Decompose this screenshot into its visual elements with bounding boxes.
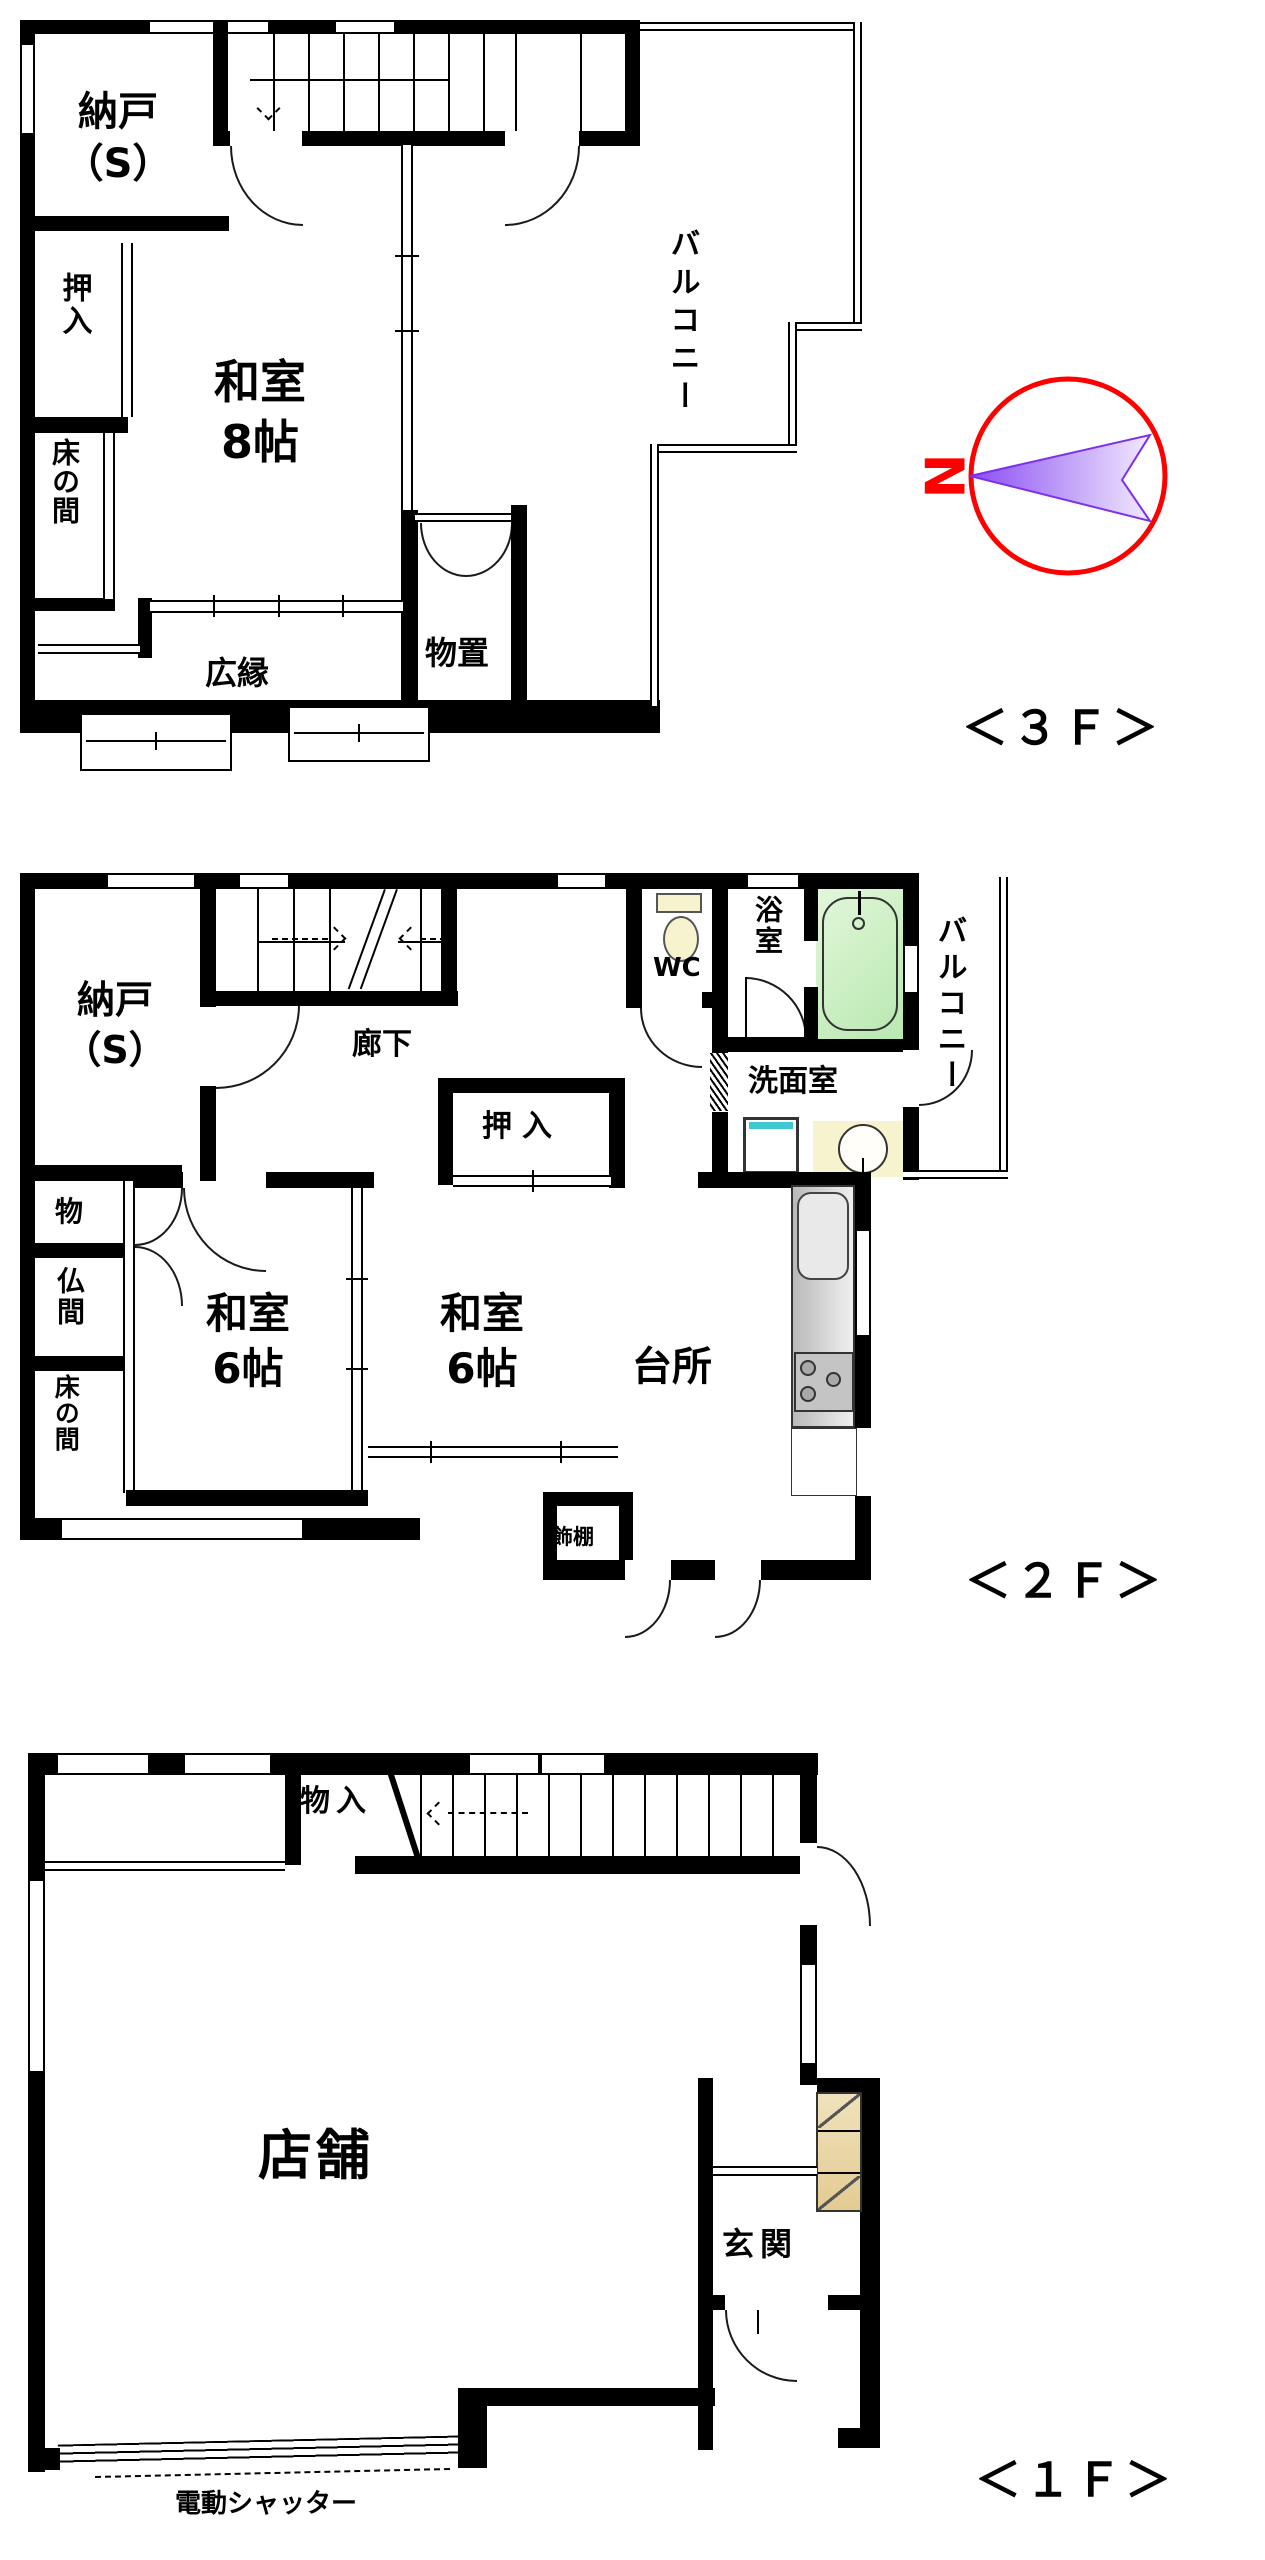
tick [155, 732, 157, 750]
door-opening [800, 1843, 817, 1925]
tick [213, 595, 215, 617]
wall [860, 2078, 880, 2433]
shutter-dashed-line [95, 2468, 450, 2478]
wall [355, 1856, 817, 1874]
compass-north-label: N [920, 453, 978, 498]
stairs-up-line [272, 938, 328, 940]
wall [438, 1078, 453, 1185]
room-label-kazaridana: 飾棚 [552, 1524, 594, 1550]
kitchen-sink-icon [797, 1192, 849, 1280]
balcony-rail [903, 1170, 1008, 1179]
room-label-washitsu6-b: 和室6帖 [392, 1272, 572, 1412]
rear-opening [855, 1428, 871, 1496]
door-opening [505, 131, 579, 146]
wall [712, 889, 728, 1053]
tick [278, 595, 280, 617]
stair-tread [257, 889, 259, 991]
wall [216, 991, 458, 1006]
room-label-butsuma: 仏間 [52, 1266, 87, 1328]
cabinet-diagonal [818, 2094, 860, 2128]
door-arc [817, 1846, 871, 1926]
burner-icon [800, 1360, 816, 1376]
partition [415, 513, 515, 522]
window [58, 1753, 148, 1775]
wall [20, 1356, 125, 1371]
room-label-wc: WC [653, 952, 701, 985]
wall [441, 889, 457, 1006]
stair-landing-line [250, 79, 450, 81]
wall [126, 1490, 368, 1506]
sliding-screen [401, 145, 413, 512]
wall [511, 505, 527, 717]
room-label-balcony-3f: バルコニー [663, 228, 701, 418]
floor-plan-canvas: 納戸（S） 押入 床の間 和室8帖 バルコニー 物置 広縁 ＜３Ｆ＞ N [0, 0, 1265, 2560]
storage-door-arc [466, 523, 513, 577]
shutter-lines [58, 2435, 463, 2464]
balcony-rail [999, 877, 1008, 1179]
window [558, 873, 605, 889]
compass-north-indicator: N [920, 358, 1180, 594]
wall [543, 1560, 871, 1580]
door-leaf [745, 977, 747, 1039]
partition [45, 1861, 285, 1871]
wall [698, 2295, 725, 2310]
room-label-daidokoro: 台所 [632, 1342, 712, 1392]
tick [395, 255, 419, 257]
door-opening [625, 1560, 671, 1580]
floor-caption-3f: ＜３Ｆ＞ [962, 692, 1162, 758]
faucet-handle-icon [852, 917, 865, 930]
stairs-line [448, 1812, 528, 1814]
window [800, 1965, 817, 2063]
entry-step-line [713, 2166, 817, 2176]
toilet-tank-icon [656, 893, 702, 913]
burner-icon [800, 1386, 816, 1402]
room-label-mono: 物 [55, 1194, 83, 1229]
window [28, 1881, 45, 2071]
burner-icon [826, 1372, 841, 1387]
wall [28, 1753, 45, 2472]
door-opening [642, 992, 702, 1008]
washing-machine-lid [749, 1122, 793, 1129]
wall [200, 889, 216, 1007]
entrance-door-arc [725, 2310, 797, 2382]
room-label-monoiri: 物入 [300, 1783, 372, 1821]
stairs-1f [420, 1775, 800, 1856]
window [150, 20, 268, 34]
compass-arrow-icon [970, 435, 1150, 521]
window [62, 1518, 302, 1540]
wall [200, 1086, 216, 1181]
door-arc [505, 146, 580, 226]
balcony-rail [788, 322, 797, 452]
window [470, 1753, 538, 1775]
stair-tread [293, 889, 295, 991]
window [336, 20, 394, 34]
wall [625, 20, 640, 146]
window [240, 873, 288, 889]
window [748, 873, 798, 889]
sliding-door [368, 1446, 618, 1458]
wall [804, 889, 818, 941]
stair-tread [580, 34, 582, 131]
wall [20, 417, 128, 433]
room-label-tokonoma-3f: 床の間 [47, 438, 82, 525]
room-label-washitsu8-3f: 和室8帖 [170, 340, 350, 485]
label-shutter: 電動シャッター [175, 2488, 357, 2521]
wall [698, 2078, 713, 2310]
wall [285, 1753, 301, 1865]
room-label-tenpo: 店舗 [258, 2122, 374, 2190]
door-arc [715, 1580, 761, 1638]
room-label-tokonoma-2f: 床の間 [50, 1374, 81, 1452]
wall [20, 1243, 125, 1258]
wall [213, 20, 228, 146]
rear-recess [791, 1428, 857, 1496]
accordion-door [710, 1053, 728, 1111]
wall [438, 1078, 623, 1093]
window [38, 644, 140, 654]
balcony-rail [640, 22, 862, 31]
room-label-hiroen-3f: 広縁 [205, 653, 269, 693]
faucet-icon [858, 891, 861, 915]
door-arc [745, 977, 807, 1039]
tick [532, 1170, 534, 1192]
stair-tread [515, 34, 517, 131]
stairs-up-arrow-icon [322, 926, 346, 950]
wall [838, 2428, 880, 2448]
tick [358, 724, 360, 742]
balcony-rail [650, 444, 797, 453]
room-label-nando-3f: 納戸（S） [32, 80, 204, 195]
wall [458, 2388, 487, 2468]
window [855, 1231, 871, 1335]
wall [609, 1078, 625, 1188]
cabinet-shelf-line [818, 2130, 860, 2132]
door-arc [230, 146, 303, 226]
floor-caption-1f: ＜１Ｆ＞ [975, 2444, 1175, 2510]
door-arc [640, 1008, 702, 1068]
cabinet-shelf-line [818, 2172, 860, 2174]
tick [346, 1278, 368, 1280]
partition [103, 433, 115, 599]
wall [712, 1112, 728, 1180]
wall [828, 2295, 880, 2310]
tick [342, 595, 344, 617]
wall [20, 20, 640, 34]
wall [28, 2448, 60, 2470]
tick [395, 330, 419, 332]
sliding-screen [351, 1188, 363, 1490]
room-label-monooki-3f: 物置 [425, 633, 489, 673]
tick [560, 1441, 562, 1463]
room-label-rouka: 廊下 [352, 1026, 412, 1064]
tick [346, 1368, 368, 1370]
wall [712, 1037, 919, 1052]
stairs-3f [273, 34, 486, 131]
room-label-nando-2f: 納戸（S） [30, 968, 200, 1083]
wall [698, 2310, 713, 2450]
wall [903, 873, 919, 1180]
door-opening [903, 1050, 919, 1107]
cabinet-diagonal [818, 2176, 860, 2210]
window [542, 1753, 604, 1775]
sliding-door [150, 600, 403, 613]
wall [20, 598, 115, 611]
wall [487, 2388, 715, 2406]
tick [430, 1441, 432, 1463]
door-arc [183, 1188, 266, 1272]
storage-door-arc [420, 523, 466, 577]
door-arc [216, 1005, 300, 1089]
stairs-down-arrow-icon [398, 926, 422, 950]
wall [20, 216, 229, 231]
floor-caption-2f: ＜２Ｆ＞ [965, 1545, 1165, 1611]
room-label-genkan: 玄関 [722, 2224, 798, 2264]
balcony-rail [650, 444, 659, 706]
door-arc [625, 1580, 671, 1638]
window [108, 873, 194, 889]
door-leaf [757, 2310, 759, 2334]
window [185, 1753, 270, 1775]
room-label-balcony-2f: バルコニー [930, 915, 968, 1095]
closet-door-arc [135, 1188, 183, 1246]
partition [121, 243, 133, 417]
balcony-rail [853, 22, 862, 330]
balcony-rail [788, 322, 862, 331]
room-label-oshiire-3f: 押入 [55, 272, 93, 338]
room-label-washitsu6-a: 和室6帖 [158, 1272, 338, 1412]
room-label-senmenshitsu: 洗面室 [748, 1063, 838, 1101]
window [903, 946, 919, 992]
room-label-oshiire-2f: 押入 [482, 1108, 562, 1146]
door-opening [230, 131, 302, 146]
wall [626, 889, 642, 1007]
wall [804, 987, 818, 1039]
partition [123, 1181, 135, 1493]
stairs-down-line [420, 938, 456, 940]
door-opening [715, 1560, 761, 1580]
wall [128, 1172, 183, 1188]
wall [266, 1172, 374, 1188]
wall [401, 577, 418, 716]
room-label-yokushitsu: 浴室 [750, 895, 785, 957]
